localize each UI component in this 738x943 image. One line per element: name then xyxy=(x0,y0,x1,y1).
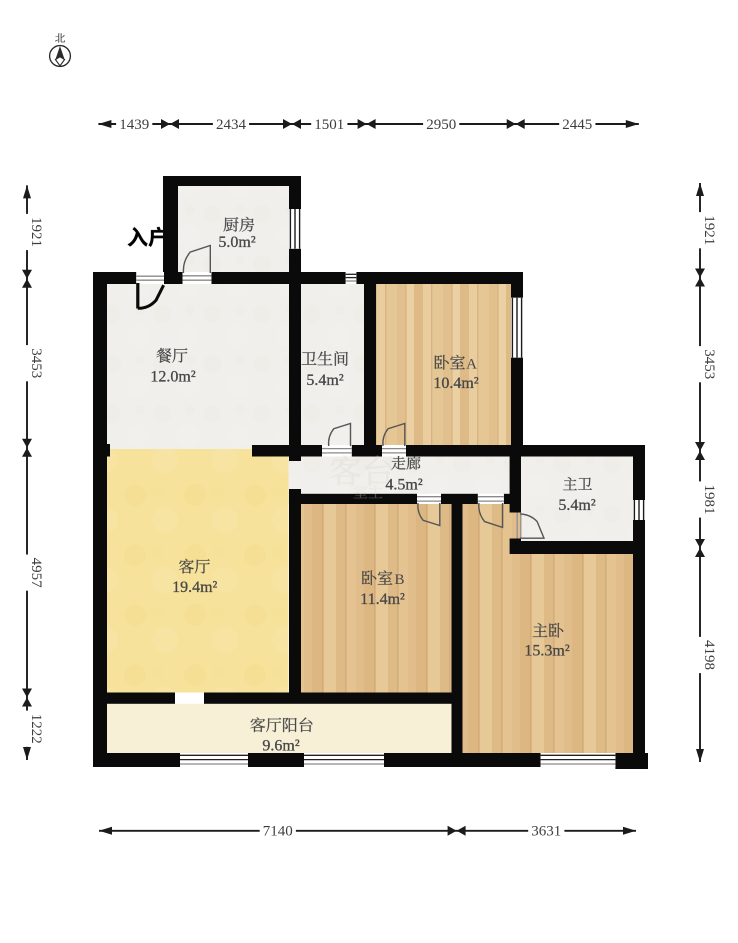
svg-text:5.4m²: 5.4m² xyxy=(306,372,343,389)
svg-text:A: A xyxy=(466,357,477,373)
svg-text:2445: 2445 xyxy=(562,117,592,133)
svg-text:10.4m²: 10.4m² xyxy=(433,375,478,392)
svg-text:1921: 1921 xyxy=(28,217,44,247)
svg-text:4957: 4957 xyxy=(28,558,44,589)
svg-text:4.5m²: 4.5m² xyxy=(385,477,422,494)
svg-text:1439: 1439 xyxy=(119,117,149,133)
svg-text:15.3m²: 15.3m² xyxy=(524,643,569,660)
svg-text:2434: 2434 xyxy=(216,117,247,133)
svg-text:19.4m²: 19.4m² xyxy=(172,579,217,596)
svg-text:7140: 7140 xyxy=(263,824,293,840)
svg-text:4198: 4198 xyxy=(701,640,717,670)
svg-text:11.4m²: 11.4m² xyxy=(360,591,405,608)
svg-text:3453: 3453 xyxy=(28,348,44,378)
svg-text:1501: 1501 xyxy=(314,117,344,133)
svg-text:9.6m²: 9.6m² xyxy=(262,738,299,755)
svg-text:1222: 1222 xyxy=(28,714,44,744)
svg-text:5.4m²: 5.4m² xyxy=(558,497,595,514)
svg-text:3631: 3631 xyxy=(531,824,561,840)
svg-text:B: B xyxy=(394,572,404,588)
svg-text:3453: 3453 xyxy=(701,349,717,379)
svg-text:2950: 2950 xyxy=(426,117,456,133)
svg-text:1921: 1921 xyxy=(701,215,717,245)
svg-text:5.0m²: 5.0m² xyxy=(218,234,255,251)
svg-text:1981: 1981 xyxy=(701,485,717,515)
svg-text:12.0m²: 12.0m² xyxy=(150,369,195,386)
